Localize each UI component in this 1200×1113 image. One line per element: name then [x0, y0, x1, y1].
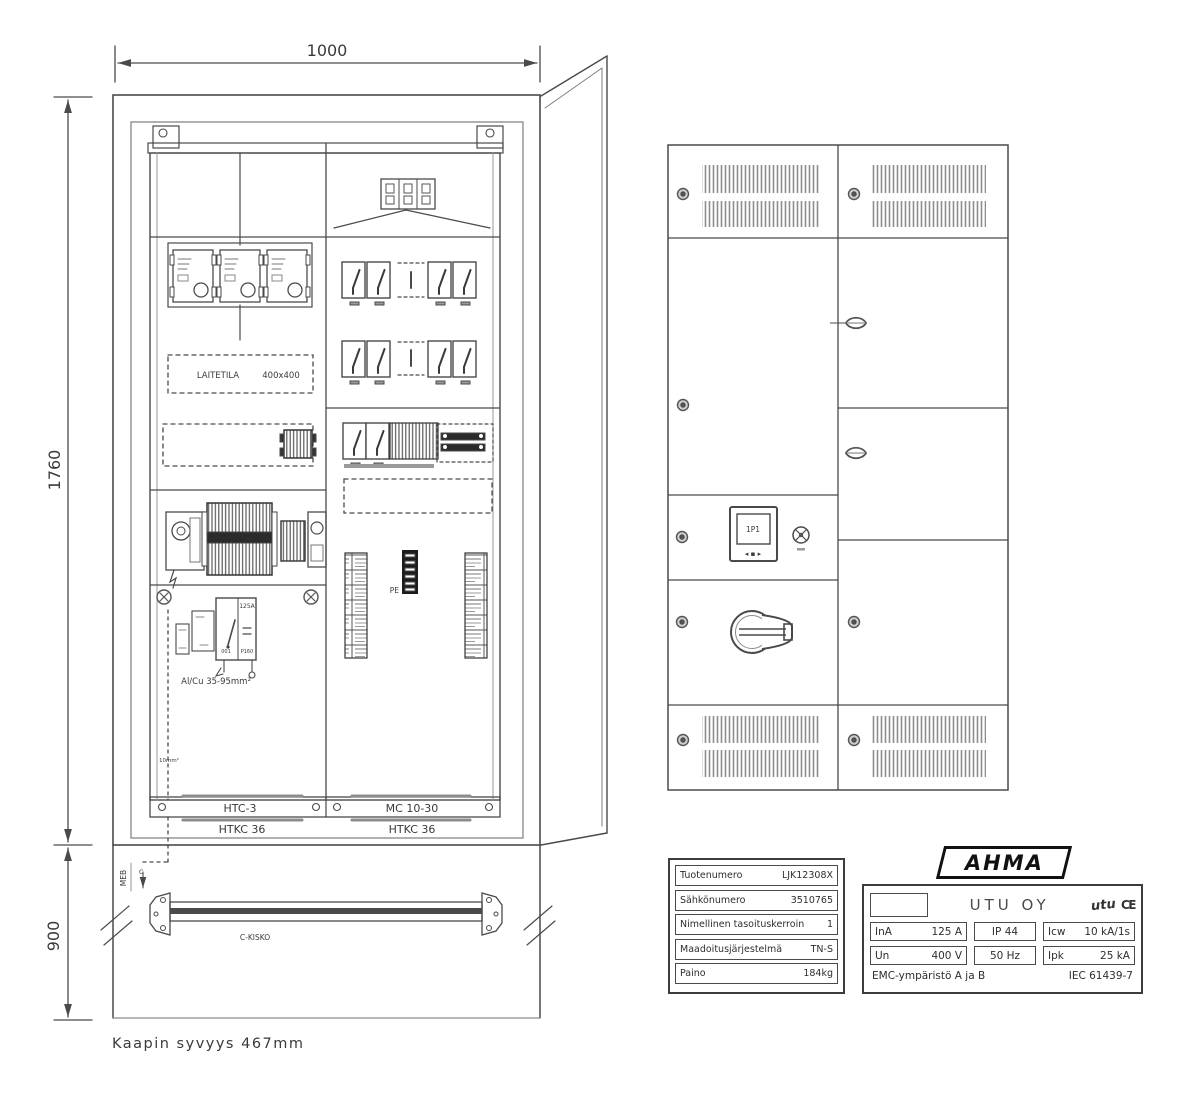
dimension-plinth: 900 — [44, 848, 92, 1020]
cabinet-interior — [148, 126, 503, 800]
product-data-table: Tuotenumero LJK12308X Sähkönumero 351076… — [668, 858, 845, 994]
ce-mark-icon: CE — [1121, 898, 1135, 912]
panel-screw-icon — [157, 590, 171, 604]
transformer-icon — [217, 250, 263, 302]
technical-drawing-page: 1000 1760 900 — [0, 0, 1200, 1113]
row-label: Nimellinen tasoituskerroin — [680, 919, 804, 930]
rating-value: 10 kA/1s — [1084, 926, 1130, 938]
meb-label: MEB — [119, 870, 128, 886]
dimension-height: 1760 — [45, 97, 92, 845]
standard-note: IEC 61439-7 — [1069, 970, 1133, 982]
front-left-column: LAITETILA 400x400 — [150, 153, 326, 800]
rating-label: Un — [875, 950, 889, 962]
panel-screw-icon — [304, 590, 318, 604]
c-rail: C-KISKO — [150, 893, 502, 942]
door-latch-icon — [846, 448, 866, 459]
door-screw-icon — [678, 400, 689, 411]
plinth-section: MEB C C-KISKO — [101, 817, 555, 1018]
row-value: 3510765 — [791, 895, 833, 906]
rating-cell: Icw 10 kA/1s — [1043, 922, 1135, 941]
frame-left-label: HTC-3 — [224, 802, 257, 815]
nameplate-logos: utu CE — [1091, 898, 1135, 913]
switch-fuse-assembly — [166, 503, 326, 588]
rating-value: 50 Hz — [990, 950, 1020, 962]
rating-nameplate: UTU OY utu CE InA 125 A IP 44 Icw 10 kA/… — [862, 884, 1143, 994]
cabinet-door-view: 1P1 ◂ ▪ ▸ — [668, 145, 1008, 790]
display-label: 1P1 — [746, 525, 760, 534]
dimension-width: 1000 — [115, 41, 540, 82]
rating-value: IP 44 — [992, 926, 1018, 938]
rating-cell: Un 400 V — [870, 946, 967, 965]
manufacturer-name: UTU OY — [928, 896, 1091, 914]
cover-left-label: HTKC 36 — [219, 823, 266, 836]
door-screw-icon — [678, 189, 689, 200]
breaker-row-1 — [342, 262, 476, 305]
row-value: LJK12308X — [782, 870, 833, 881]
door-screw-icon — [677, 617, 688, 628]
rating-label: Icw — [1048, 926, 1065, 938]
indicator-lamp-icon — [793, 527, 809, 551]
bottom-frame-strip: HTC-3 MC 10-30 HTKC 36 HTKC 36 — [150, 796, 500, 836]
door-screw-icon — [849, 617, 860, 628]
transformer-icon — [170, 250, 216, 302]
utu-logo: utu — [1091, 896, 1117, 914]
door-latch-icon — [846, 318, 866, 329]
row-value: 1 — [827, 919, 833, 930]
table-row: Tuotenumero LJK12308X — [675, 865, 838, 886]
vent-grille-bottom — [702, 716, 986, 777]
cover-right-label: HTKC 36 — [389, 823, 436, 836]
brand-logo-box: AHMA — [936, 846, 1072, 879]
rating-value: 25 kA — [1100, 950, 1130, 962]
door-screw-icon — [849, 735, 860, 746]
row-label: Sähkönumero — [680, 895, 746, 906]
door-screw-icon — [678, 735, 689, 746]
breaker-row-3 — [343, 423, 493, 468]
frame-right-label: MC 10-30 — [386, 802, 439, 815]
row-value: TN-S — [811, 944, 833, 955]
rating-cell: 50 Hz — [974, 946, 1036, 965]
main-switch-area: 125A 001 P160 Al/Cu 35-95mm² 10mm² — [159, 598, 256, 800]
switch-ref1-label: 001 — [221, 649, 231, 655]
dim-height-label: 1760 — [45, 450, 64, 491]
terminal-strips: PE — [345, 550, 487, 658]
row-label: Maadoitusjärjestelmä — [680, 944, 782, 955]
pe-label: PE — [390, 586, 400, 595]
main-switch-handle — [731, 611, 792, 653]
rating-cell: InA 125 A — [870, 922, 967, 941]
nameplate-header: UTU OY utu CE — [870, 891, 1135, 919]
switch-rating-label: 125A — [239, 603, 255, 610]
dim-plinth-label: 900 — [44, 921, 63, 952]
laitetila-label: LAITETILA — [197, 371, 239, 381]
depth-note: Kaapin syvyys 467mm — [112, 1036, 305, 1052]
door-screw-icon — [849, 189, 860, 200]
brand-name: AHMA — [965, 851, 1044, 875]
nameplate-footer: EMC-ympäristö A ja B IEC 61439-7 — [870, 970, 1135, 982]
laitetila-size: 400x400 — [262, 371, 299, 381]
earth-note: 10mm² — [159, 757, 179, 764]
rail-label: C-KISKO — [240, 933, 270, 942]
dim-width-label: 1000 — [307, 41, 348, 60]
rating-grid: InA 125 A IP 44 Icw 10 kA/1s Un 400 V 50… — [870, 922, 1135, 965]
door-screw-icon — [677, 532, 688, 543]
table-row: Maadoitusjärjestelmä TN-S — [675, 939, 838, 960]
switch-ref2-label: P160 — [241, 649, 254, 655]
display-buttons: ◂ ▪ ▸ — [745, 550, 762, 558]
vent-grille-top — [702, 165, 986, 227]
rating-cell: IP 44 — [974, 922, 1036, 941]
rating-value: 400 V — [931, 950, 962, 962]
door-display-unit: 1P1 ◂ ▪ ▸ — [730, 507, 777, 561]
row-label: Paino — [680, 968, 706, 979]
rating-value: 125 A — [931, 926, 962, 938]
table-row: Nimellinen tasoituskerroin 1 — [675, 914, 838, 935]
table-row: Paino 184kg — [675, 963, 838, 984]
rating-label: Ipk — [1048, 950, 1064, 962]
row-value: 184kg — [803, 968, 833, 979]
blank-field — [870, 893, 928, 917]
emc-note: EMC-ympäristö A ja B — [872, 970, 985, 982]
rating-cell: Ipk 25 kA — [1043, 946, 1135, 965]
table-row: Sähkönumero 3510765 — [675, 890, 838, 911]
meb-earthing-point: MEB C — [119, 817, 168, 891]
cabinet-front-view: 1000 1760 900 — [44, 41, 607, 1052]
front-right-column: PE — [326, 179, 500, 658]
cable-note: Al/Cu 35-95mm² — [181, 677, 251, 687]
breaker-row-2 — [342, 341, 476, 384]
rating-label: InA — [875, 926, 892, 938]
transformer-icon — [264, 250, 310, 302]
open-door — [541, 56, 607, 845]
row-label: Tuotenumero — [680, 870, 742, 881]
